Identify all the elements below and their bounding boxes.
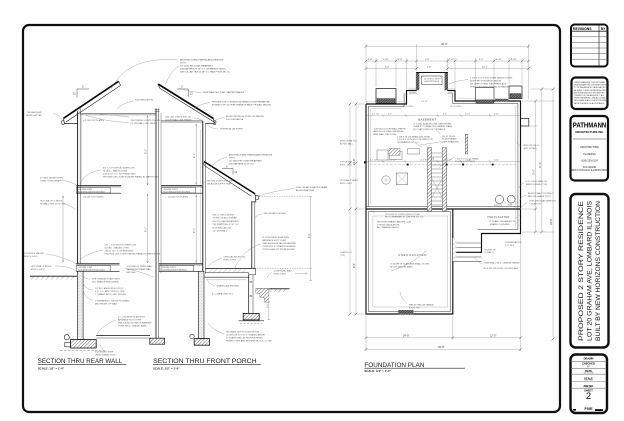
svg-text:4" SLAB CONGEALED W/: 4" SLAB CONGEALED W/ (490, 220, 516, 223)
svg-text:4'-10": 4'-10" (496, 59, 502, 61)
svg-text:34'-8": 34'-8" (550, 219, 553, 225)
svg-text:4" COMPACTED FILL: 4" COMPACTED FILL (212, 293, 234, 296)
svg-text:OVER MIN 4" GRAVEL BASE: OVER MIN 4" GRAVEL BASE (118, 325, 147, 328)
svg-text:4'-1 1/2": 4'-1 1/2" (372, 114, 380, 116)
svg-text:FLUSH BEAM: FLUSH BEAM (442, 138, 456, 141)
svg-text:UNDISTURBED SOIL: UNDISTURBED SOIL (95, 355, 117, 357)
svg-text:12'-0": 12'-0" (490, 335, 496, 338)
svg-text:GLUED + NAILED OVER: GLUED + NAILED OVER (103, 170, 128, 173)
svg-text:1/2"X10" ANCHOR BOLTS @: 1/2"X10" ANCHOR BOLTS @ (95, 287, 123, 290)
svg-text:SUMP: SUMP (508, 205, 514, 207)
svg-text:WEST CHICAGO, ILLINOIS 60185: WEST CHICAGO, ILLINOIS 60185 (571, 169, 609, 172)
svg-text:4'-10": 4'-10" (465, 114, 470, 116)
svg-text:4" CONC SLAB W/ 6 MIL VAPOR BR: 4" CONC SLAB W/ 6 MIL VAPOR BRR (413, 122, 451, 125)
svg-text:TOP OF WALL: TOP OF WALL (340, 161, 353, 164)
svg-text:PITCH SLAB 1/8" FROM HOUSE: PITCH SLAB 1/8" FROM HOUSE (263, 248, 295, 251)
svg-text:BASEMENT: BASEMENT (418, 117, 436, 121)
svg-text:ARCHITECTURE INC.: ARCHITECTURE INC. (575, 130, 604, 134)
svg-text:6X6 CEDAR COLUMN: 6X6 CEDAR COLUMN (264, 212, 286, 215)
svg-text:ELEV = 98.9': ELEV = 98.9' (274, 274, 287, 276)
svg-text:BP: BP (587, 366, 591, 369)
svg-text:6'-0": 6'-0" (388, 114, 392, 116)
svg-text:ELEV = 100.5': ELEV = 100.5' (340, 164, 353, 166)
svg-text:ALUM GUTTER: ALUM GUTTER (27, 114, 43, 117)
svg-text:1X10 CEDAR WRAPPED BEAM: 1X10 CEDAR WRAPPED BEAM (296, 186, 327, 189)
svg-text:2'-8": 2'-8" (398, 59, 403, 61)
svg-text:FIVE: FIVE (585, 407, 594, 411)
svg-text:BUILT BY NEW HORIZONS CONSTRUC: BUILT BY NEW HORIZONS CONSTRUCTION (595, 201, 602, 341)
svg-text:36'-8": 36'-8" (441, 42, 448, 46)
svg-text:8'-1": 8'-1" (144, 149, 147, 154)
svg-text:4'-1 1/2": 4'-1 1/2" (370, 160, 378, 162)
svg-text:4" GRAVEL BELOW PROVIDE RISES: 4" GRAVEL BELOW PROVIDE RISES (226, 337, 263, 340)
svg-text:MID HEIGHT OF WALL: MID HEIGHT OF WALL (95, 303, 118, 306)
svg-text:ELEV = 99.9': ELEV = 99.9' (224, 260, 237, 262)
svg-text:1X4 ALUM SOFFIT TRIM: 1X4 ALUM SOFFIT TRIM (207, 183, 231, 186)
svg-text:6MIL KINGDOM VAPOR BARRIER: 6MIL KINGDOM VAPOR BARRIER (118, 322, 152, 325)
svg-text:4'-10": 4'-10" (511, 59, 517, 61)
svg-text:PLANNING: PLANNING (583, 153, 595, 156)
svg-text:4'-10": 4'-10" (449, 59, 455, 61)
svg-text:2X7 + G PLYWOOD SUBFLOOR: 2X7 + G PLYWOOD SUBFLOOR (105, 245, 137, 247)
svg-text:4'-10": 4'-10" (494, 114, 499, 116)
svg-text:3/4 T+G PLYWOOD SUBFLOOR: 3/4 T+G PLYWOOD SUBFLOOR (103, 168, 135, 170)
svg-text:THESE DRAWINGS, CONCEPTS AND: THESE DRAWINGS, CONCEPTS AND (574, 81, 606, 84)
svg-text:(630) 555-0134: (630) 555-0134 (581, 160, 598, 163)
svg-text:5'-8": 5'-8" (368, 59, 373, 61)
svg-text:GAS FIREPLACE: GAS FIREPLACE (424, 80, 440, 83)
svg-text:SCALE: 1/2" = 1'-0": SCALE: 1/2" = 1'-0" (153, 367, 180, 371)
svg-text:8'-0": 8'-0" (353, 263, 356, 268)
svg-text:(2) 11 7/8 LVL: (2) 11 7/8 LVL (442, 136, 456, 138)
svg-text:9'-1": 9'-1" (144, 227, 147, 232)
svg-text:6'-0" O.C. MIN 2 PER PC. MIN: 6'-0" O.C. MIN 2 PER PC. MIN (95, 291, 125, 293)
svg-text:WINDOW WELL: WINDOW WELL (523, 145, 540, 147)
svg-text:4'-10": 4'-10" (494, 160, 499, 162)
svg-text:TYVEK ON BLDG WRAP: TYVEK ON BLDG WRAP (213, 217, 238, 220)
svg-text:ANY FORM WITHOUT THE WRITTEN: ANY FORM WITHOUT THE WRITTEN (574, 91, 605, 94)
svg-text:AT FDN. WALL: AT FDN. WALL (340, 142, 353, 145)
svg-text:H8 DRAIN TILE IN SLUSH ROOM: H8 DRAIN TILE IN SLUSH ROOM (226, 331, 259, 334)
svg-text:1'-11 1/2": 1'-11 1/2" (388, 160, 397, 162)
svg-text:(SEE FRAMING): (SEE FRAMING) (442, 140, 459, 143)
svg-text:2X6 CEILING JOISTS P.W. 2/0,: 2X6 CEILING JOISTS P.W. 2/0, (131, 120, 161, 122)
svg-text:2X8 COLLAR TIES @ 48" O.C. MAX: 2X8 COLLAR TIES @ 48" O.C. MAX PITCH 4B … (180, 71, 231, 74)
svg-text:OPTIONAL 4" BRICK: OPTIONAL 4" BRICK (31, 265, 52, 268)
svg-text:GRAVEL COVERED: GRAVEL COVERED (490, 223, 510, 226)
svg-text:R-38 INSULATION: R-38 INSULATION (135, 98, 153, 101)
svg-text:(2) DRYWALL CEIL FINISH: (2) DRYWALL CEIL FINISH (131, 122, 158, 125)
svg-text:8'-1": 8'-1" (193, 153, 196, 158)
svg-text:ON 7/16 OSB SHEATHING: ON 7/16 OSB SHEATHING (213, 220, 239, 223)
svg-text:ALUM WRAPPING: ALUM WRAPPING (296, 189, 315, 192)
svg-text:TOP 7/8 X 10 DRYWALL PARTN: TOP 7/8 X 10 DRYWALL PARTN (374, 127, 406, 130)
svg-text:SCALE: 1/4" = 1'-0": SCALE: 1/4" = 1'-0" (364, 369, 391, 373)
svg-text:ABOVE FOOTING UNDER ALL: ABOVE FOOTING UNDER ALL (374, 130, 406, 133)
svg-text:15# (30#) FELT-OSB SHEATHING: 15# (30#) FELT-OSB SHEATHING (180, 65, 213, 68)
svg-text:CONTINUATION: CONTINUATION (505, 241, 522, 244)
svg-text:SECTION THRU FRONT PORCH: SECTION THRU FRONT PORCH (153, 358, 257, 365)
svg-text:LOCATION: LOCATION (530, 203, 541, 206)
svg-text:36'-8": 36'-8" (438, 345, 445, 349)
svg-text:SLOPE TIE: SLOPE TIE (485, 249, 497, 251)
svg-text:21'-4": 21'-4" (540, 162, 542, 168)
svg-text:ELECTRIC/GAS SERVICE: ELECTRIC/GAS SERVICE (530, 200, 557, 203)
svg-text:AIRSPACE SLOT OVER: AIRSPACE SLOT OVER (263, 239, 287, 242)
svg-text:GLUED + NAILED OVER: GLUED + NAILED OVER (105, 247, 130, 250)
svg-text:9'-1": 9'-1" (193, 228, 196, 233)
svg-text:6MIL KINGDOM VAPOR BARRIER: 6MIL KINGDOM VAPOR BARRIER (263, 242, 297, 245)
svg-text:ARCHITECTURAL FIBERGLASS SHING: ARCHITECTURAL FIBERGLASS SHINGLES (180, 59, 224, 62)
svg-text:05-10-08: 05-10-08 (584, 371, 594, 374)
svg-text:ADDITIONAL FOOTING 2': ADDITIONAL FOOTING 2' (528, 192, 554, 195)
svg-text:(2) 2X6 TOP PLATES: (2) 2X6 TOP PLATES (168, 195, 189, 198)
svg-text:PATHMANN: PATHMANN (573, 123, 607, 130)
svg-text:4" VINYL SIDING (TYP): 4" VINYL SIDING (TYP) (40, 178, 63, 180)
svg-text:PROVIDE CEIL JOISTS UNDER PARA: PROVIDE CEIL JOISTS UNDER PARALLEL PARTI… (103, 176, 159, 179)
svg-text:GBL 4" VINYL SIDING: GBL 4" VINYL SIDING (213, 215, 235, 217)
svg-text:OUTLINE OF RISED WALL: OUTLINE OF RISED WALL (127, 265, 154, 268)
svg-text:PUMPS OVER AND INTERME BLOCK+1: PUMPS OVER AND INTERME BLOCK+1 LTSS (226, 340, 272, 343)
svg-text:1 5/8 X 14 LVL BEAM (2X) STEEL: 1 5/8 X 14 LVL BEAM (2X) STEEL (397, 135, 431, 138)
svg-text:40'-6 3/8" OF CONC. STOOPS ABV: 40'-6 3/8" OF CONC. STOOPS ABV (483, 267, 519, 270)
svg-text:05-208: 05-208 (585, 386, 593, 389)
svg-text:CRITICAL FRONT LVL.: CRITICAL FRONT LVL. (224, 256, 247, 259)
svg-text:2X6 CEIL JOISTS P.W. 2/0: 2X6 CEIL JOISTS P.W. 2/0 (207, 181, 233, 183)
svg-text:WITH THEM SHALL CONSTITUTE PRI: WITH THEM SHALL CONSTITUTE PRIMA (574, 99, 609, 102)
svg-text:12'-0": 12'-0" (534, 169, 536, 175)
svg-text:4'-0" CONC WALL W/: 4'-0" CONC WALL W/ (526, 180, 547, 183)
svg-text:REVISIONS: REVISIONS (573, 27, 592, 31)
svg-text:(TYP.): (TYP.) (229, 158, 235, 160)
svg-text:2X8 @ 16" O.C. WITH BRIDGING: 2X8 @ 16" O.C. WITH BRIDGING (103, 174, 136, 176)
svg-text:STRUCTURAL FILL: STRUCTURAL FILL (340, 140, 357, 143)
svg-text:9'-2": 9'-2" (385, 66, 390, 68)
svg-text:(2) DRYWALL CEIL FINISH: (2) DRYWALL CEIL FINISH (165, 119, 192, 122)
svg-text:ELEV = 100.3': ELEV = 100.3' (340, 183, 353, 185)
svg-text:14'-1": 14'-1" (482, 66, 488, 68)
svg-text:ALUM DRIP EDGE OVER 1X6 FASCIA: ALUM DRIP EDGE OVER 1X6 FASCIA (226, 115, 264, 118)
svg-text:4" CONCRETE SLAB WITH: 4" CONCRETE SLAB WITH (118, 316, 145, 319)
svg-text:4" CONCRETE SLAB WITH: 4" CONCRETE SLAB WITH (263, 236, 290, 239)
svg-text:BEYOND: BEYOND (127, 272, 136, 274)
svg-text:VERIFY ROUGH OPENING W/ MANUF: VERIFY ROUGH OPENING W/ MANUF (470, 86, 510, 89)
svg-text:48" DIRECT VENT GAS FIREPLACE: 48" DIRECT VENT GAS FIREPLACE (470, 83, 507, 86)
svg-text:PROVIDE CEIL JOISTS UNDER PARA: PROVIDE CEIL JOISTS UNDER PARALLEL PARTI… (105, 253, 161, 256)
svg-text:(TYP): (TYP) (340, 255, 345, 257)
svg-text:W/ TC PREMIER 16" DIM FOR 24": W/ TC PREMIER 16" DIM FOR 24" O.C. (385, 217, 425, 219)
svg-text:OUTLINE OF 4" BRICK: OUTLINE OF 4" BRICK (40, 201, 63, 203)
svg-text:7" EMBED INTO CONC EDGES: 7" EMBED INTO CONC EDGES (95, 294, 126, 296)
svg-text:(2) 2X6 TOP PLATES: (2) 2X6 TOP PLATES (84, 119, 105, 122)
svg-text:CONSENT OF THE ARCHITECT. ALL: CONSENT OF THE ARCHITECT. ALL (574, 94, 604, 97)
svg-text:(TYP.): (TYP.) (180, 63, 186, 65)
svg-text:1/2" DRYWALL: 1/2" DRYWALL (213, 230, 228, 233)
svg-text:OPTIONAL 4" BRICK: OPTIONAL 4" BRICK (340, 179, 359, 182)
svg-text:FTGS TYP: FTGS TYP (409, 307, 420, 309)
svg-text:5'-2": 5'-2" (479, 59, 484, 61)
svg-text:BRICK LEDGE (TYP): BRICK LEDGE (TYP) (526, 184, 547, 186)
svg-text:24'-8": 24'-8" (353, 159, 356, 165)
svg-text:COVER UP TO TOP 4" GRAVEL ABOV: COVER UP TO TOP 4" GRAVEL ABOVE (226, 334, 266, 337)
svg-text:THE TREATED PLATE WITH: THE TREATED PLATE WITH (92, 278, 120, 281)
svg-text:AIRSPACE SLOT OVER: AIRSPACE SLOT OVER (118, 319, 142, 322)
svg-text:R-19 INSULATION: R-19 INSULATION (213, 226, 231, 229)
svg-text:SUPPORT FOR BRICK ABOVE: SUPPORT FOR BRICK ABOVE (470, 80, 502, 83)
svg-text:2" RIGID INSULATION: 2" RIGID INSULATION (377, 223, 400, 226)
svg-text:CONF WALL W/ 1" CEMENT PARGE: CONF WALL W/ 1" CEMENT PARGE (483, 261, 520, 264)
svg-text:ARCHITECTURE: ARCHITECTURE (580, 146, 599, 149)
svg-text:PROVIDE 1X8 CONTINUOUS FIREBLO: PROVIDE 1X8 CONTINUOUS FIREBLOCK AT PERI… (212, 100, 270, 103)
svg-text:DRAWN: DRAWN (584, 357, 594, 361)
svg-text:EXTEND TYP. 1/2" RISE INTERIOR: EXTEND TYP. 1/2" RISE INTERIOR FACE OF W… (212, 103, 272, 106)
svg-text:(2) COATS DRYLOK ON WALLS: (2) COATS DRYLOK ON WALLS (413, 128, 446, 131)
svg-text:CONTROL JT.: CONTROL JT. (340, 252, 353, 254)
svg-text:12'-1 1/2": 12'-1 1/2" (420, 160, 429, 162)
svg-text:2X8 RAFTERS @ 16" O.C. W/ BAFF: 2X8 RAFTERS @ 16" O.C. W/ BAFFLE VENTS (180, 68, 226, 71)
svg-text:2X6 PREPPING @ 16" O.C.: 2X6 PREPPING @ 16" O.C. (213, 224, 240, 226)
svg-text:VENT BAFFLES @ ALL RAFTER SPAC: VENT BAFFLES @ ALL RAFTER SPACES (203, 91, 245, 94)
svg-text:3 1/2 X 3 1/2 X 5/16 COLUMN (T: 3 1/2 X 3 1/2 X 5/16 COLUMN (TYP) (397, 139, 433, 141)
svg-text:2'-8": 2'-8" (425, 59, 430, 61)
svg-text:BELOW GRADE (TYP): BELOW GRADE (TYP) (528, 195, 551, 198)
svg-text:MIN 42" BELOW GRADE: MIN 42" BELOW GRADE (409, 304, 434, 307)
svg-text:OVER 4" COMPACTED GRAVEL BASE: OVER 4" COMPACTED GRAVEL BASE (413, 125, 452, 128)
svg-text:2'-8": 2'-8" (427, 66, 432, 68)
svg-text:DESIGNS ARE THE COPYRIGHT PROP: DESIGNS ARE THE COPYRIGHT PROPER- (574, 84, 610, 87)
svg-text:BRG WALL SECTIONS: BRG WALL SECTIONS (374, 133, 397, 136)
svg-text:4X4 W4XW4 WWF: 4X4 W4XW4 WWF (95, 352, 114, 354)
svg-text:1X6 FASCIA W/: 1X6 FASCIA W/ (27, 111, 43, 114)
svg-text:ELEV = 100.5': ELEV = 100.5' (24, 256, 38, 258)
svg-text:7'-0" 36.3": 7'-0" 36.3" (505, 245, 515, 247)
svg-text:1'-10": 1'-10" (383, 59, 389, 61)
svg-text:4'-8 1/2": 4'-8 1/2" (421, 101, 428, 103)
svg-text:PROPOSED 2 STORY RESIDENCE: PROPOSED 2 STORY RESIDENCE (578, 201, 585, 341)
svg-text:OVER TYVEK WRAP: OVER TYVEK WRAP (40, 180, 61, 183)
svg-text:VENTED ALUM SOFFIT: VENTED ALUM SOFFIT (220, 128, 244, 131)
svg-text:OVER FILL 4" GRAVEL RESERVE: OVER FILL 4" GRAVEL RESERVE (263, 245, 297, 248)
svg-text:PROVIDE GRAVEL BACKFILL (W): PROVIDE GRAVEL BACKFILL (W) (377, 221, 411, 224)
svg-text:4 1/2 X 3 1/2 X 5/16 STEEL ANG: 4 1/2 X 3 1/2 X 5/16 STEEL ANGLE LINTEL (470, 77, 514, 80)
svg-text:(2 WALL): (2 WALL) (485, 251, 494, 254)
svg-text:GRAVEL (AS SHOWN): GRAVEL (AS SHOWN) (217, 284, 239, 287)
svg-text:(2) 2X6 TOP PLATES: (2) 2X6 TOP PLATES (84, 195, 105, 198)
svg-text:16" POURED: 16" POURED (450, 106, 462, 108)
svg-text:2X8 @ 16 O.C. W/ BRIDGING: 2X8 @ 16 O.C. W/ BRIDGING (105, 251, 134, 253)
svg-text:2X6 CEIL JOISTS P.W. 2/0,: 2X6 CEIL JOISTS P.W. 2/0, (165, 117, 192, 119)
svg-text:2: 2 (586, 391, 591, 402)
svg-text:RIGHTS RESERVED. VISUAL CONTAC: RIGHTS RESERVED. VISUAL CONTACT (574, 97, 608, 100)
svg-text:UNEXCAVATED: UNEXCAVATED (398, 253, 427, 257)
svg-text:EJECTOR: EJECTOR (494, 205, 503, 207)
svg-text:16" POURED: 16" POURED (402, 106, 414, 108)
svg-text:8'-0": 8'-0" (309, 233, 311, 238)
svg-text:ALL GARAGE WALLS: ALL GARAGE WALLS (377, 226, 399, 229)
svg-text:UNEXCAVATED: UNEXCAVATED (487, 216, 510, 219)
svg-text:ELEV = 100.3': ELEV = 100.3' (31, 269, 45, 271)
svg-text:LOT 20 GRAHAM AVE, LOMBARD ILL: LOT 20 GRAHAM AVE, LOMBARD ILLINOIS (587, 201, 594, 341)
svg-text:SCALE: 1/2" = 1'-0": SCALE: 1/2" = 1'-0" (38, 367, 65, 371)
svg-text:15# (30#) FELT-OSB SHEATHING: 15# (30#) FELT-OSB SHEATHING (229, 160, 262, 163)
svg-text:7 1/4 X 1 1/2 LVL BEAM: 7 1/4 X 1 1/2 LVL BEAM (455, 158, 479, 161)
svg-text:24'-8": 24'-8" (403, 335, 409, 338)
svg-text:SECTION THRU REAR WALL: SECTION THRU REAR WALL (38, 358, 123, 365)
svg-text:NOTED: NOTED (584, 379, 593, 382)
svg-text:SILL SEALER INSULATION: SILL SEALER INSULATION (92, 281, 119, 284)
svg-text:1ST FLR OF JOISTS (PLUS TOTAL: 1ST FLR OF JOISTS (PLUS TOTAL (385, 213, 421, 216)
svg-text:8'-2": 8'-2" (443, 114, 447, 116)
svg-text:2X6 SUB FASCIA: 2X6 SUB FASCIA (226, 118, 244, 121)
svg-text:2" REBAR/EXT. TOP BOTTOM AND: 2" REBAR/EXT. TOP BOTTOM AND (95, 300, 130, 303)
svg-text:CONTINUED WALL: CONTINUED WALL (274, 270, 294, 273)
svg-text:TOP/FDN 4" ABOVE: TOP/FDN 4" ABOVE (24, 252, 44, 255)
svg-text:(SEE DETAIL): (SEE DETAIL) (523, 147, 537, 150)
svg-text:FLUSH (DROPPED): FLUSH (DROPPED) (455, 161, 475, 163)
svg-text:ARCHITECTURAL FIBERGLASS SHING: ARCHITECTURAL FIBERGLASS SHINGLES (229, 154, 273, 157)
svg-text:FACIE EVIDENCE OF ACCEPTANCE.: FACIE EVIDENCE OF ACCEPTANCE. (574, 102, 605, 105)
svg-text:TY OF THE ARCHITECT AND MAY NO: TY OF THE ARCHITECT AND MAY NOT (574, 86, 607, 89)
svg-text:3'-6": 3'-6" (267, 303, 269, 308)
svg-text:2X6 RAFTERS @ 16" O.C.: 2X6 RAFTERS @ 16" O.C. (229, 163, 255, 166)
